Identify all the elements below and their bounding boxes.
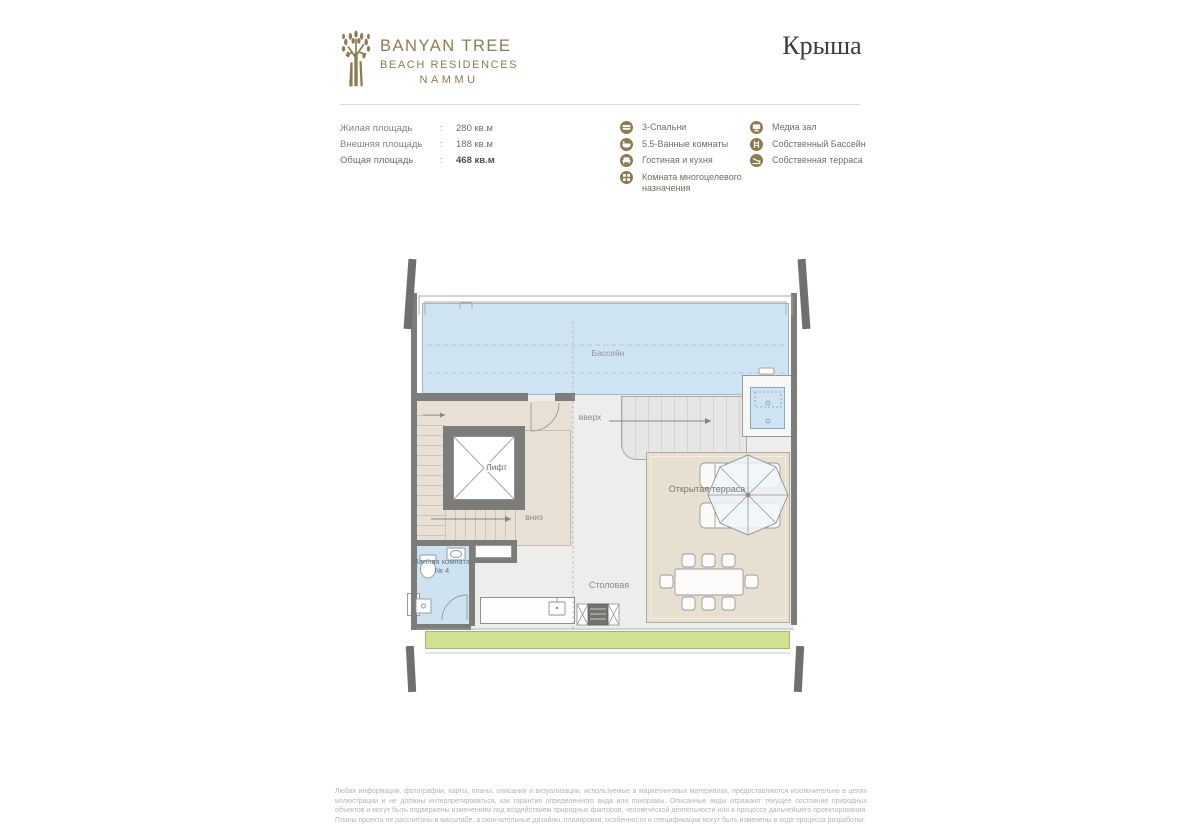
brochure-page: BANYAN TREE BEACH RESIDENCES NAMMU Крыша… [0,0,1200,840]
sofa-icon [620,154,633,167]
area-table: Жилая площадь:280 кв.м Внешняя площадь:1… [340,121,495,169]
room-label-terrace: Открытая терраса [653,484,761,494]
bath-icon [620,138,633,151]
area-row-total: Общая площадь:468 кв.м [340,153,495,169]
legend-label: Собственный Бассейн [772,138,866,151]
bbq-grill [577,604,619,625]
page-title: Крыша [758,31,886,61]
shower [416,599,431,613]
stairs-label-up: вверх [571,412,609,422]
colon: : [440,153,450,169]
bed-icon [620,121,633,134]
legend-item-living-kitchen: Гостиная и кухня [620,154,770,167]
deck-edge-lines [419,296,792,315]
door-arc-lobby [531,403,559,431]
banyan-tree-logo-icon [339,29,373,89]
dining-table-set [660,554,758,610]
legend-label: 5.5-Ванные комнаты [642,138,728,151]
media-icon [750,121,763,134]
disclaimer-text: Любая информация, фотографии, карты, пла… [335,787,867,825]
legend-item-pool: Собственный Бассейн [750,138,880,151]
plan-linework [403,263,813,693]
down-arrow [431,516,511,522]
legend-label: 3-Спальни [642,121,686,134]
legend-item-media: Медиа зал [750,121,880,134]
legend-label: Медиа зал [772,121,817,134]
multipurpose-icon [620,171,633,184]
room-label-pool: Бассейн [573,348,643,358]
floor-plan: Бассейн вверх Лифт вниз Ванная комната №… [403,263,813,693]
pool-icon [750,138,763,151]
legend-item-multipurpose: Комната многоцелевого назначения [620,171,770,195]
area-row-external: Внешняя площадь:188 кв.м [340,137,495,153]
room-label-dining: Столовая [579,580,639,590]
legend-label: Гостиная и кухня [642,154,713,167]
room-label-bathroom: Ванная комната № 4 [413,557,471,575]
colon: : [440,121,450,137]
brand-name: BANYAN TREE [380,37,518,56]
area-label: Жилая площадь [340,121,440,137]
legend-item-terrace: Собственная терраса [750,154,880,167]
area-label: Внешняя площадь [340,137,440,153]
area-label: Общая площадь [340,153,440,169]
header-divider [340,104,860,105]
door-arc-bathroom [442,595,467,620]
legend-right: Медиа зал Собственный Бассейн Собственна… [750,121,880,171]
brand-block: BANYAN TREE BEACH RESIDENCES NAMMU [380,37,518,86]
jacuzzi-detail [755,368,781,423]
brand-subtitle: BEACH RESIDENCES [380,59,518,71]
legend-item-bathrooms: 5.5-Ванные комнаты [620,138,770,151]
legend-label: Комната многоцелевого назначения [642,171,760,195]
terrace-icon [750,154,763,167]
area-value: 280 кв.м [450,123,493,134]
elevator-label-text: Лифт [484,462,509,472]
area-value: 188 кв.м [450,139,493,150]
legend-item-bedrooms: 3-Спальни [620,121,770,134]
area-row-living: Жилая площадь:280 кв.м [340,121,495,137]
parasol-umbrella [708,455,788,535]
brand-location: NAMMU [380,74,518,86]
area-value: 468 кв.м [450,155,495,166]
legend-left: 3-Спальни 5.5-Ванные комнаты Гостиная и … [620,121,770,198]
up-arrow [609,418,711,424]
colon: : [440,137,450,153]
stair-return-arrow [423,413,445,418]
legend-label: Собственная терраса [772,154,863,167]
stairs-label-down: вниз [517,512,551,522]
kitchen-sink [549,598,565,615]
